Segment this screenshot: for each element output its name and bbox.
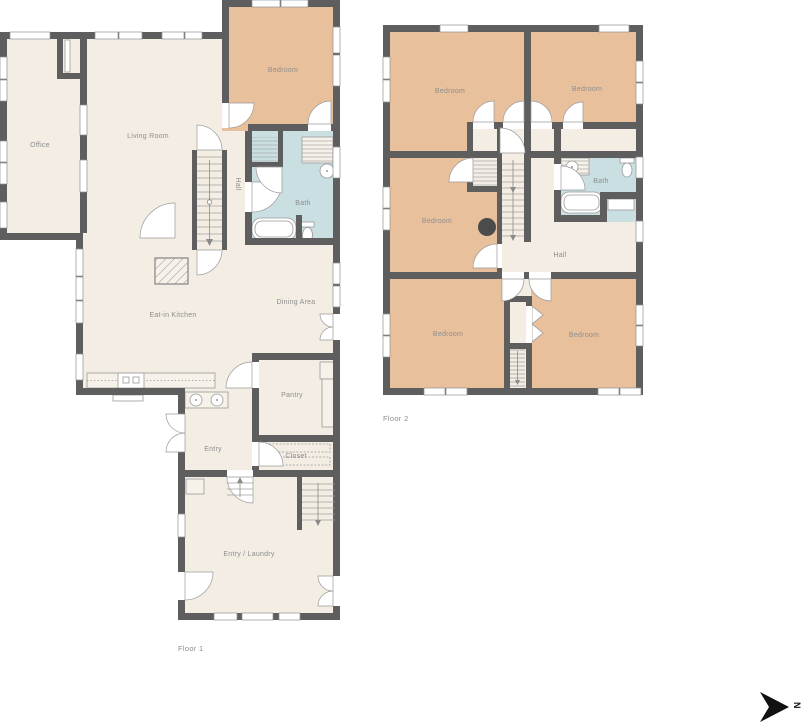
chimney [478, 218, 496, 236]
room-label-hall2: Hall [553, 252, 566, 259]
laundry-box [186, 479, 204, 494]
floor2-title: Floor 2 [383, 414, 408, 423]
room-label-pantry: Pantry [281, 392, 303, 399]
compass: N [760, 692, 802, 722]
room-label-kitchen: Eat-in Kitchen [149, 312, 196, 319]
room-label-bedroom-mid-left: Bedroom [422, 218, 452, 225]
door-arc [166, 414, 185, 433]
door-arc [166, 433, 185, 452]
toilet-bowl [622, 163, 632, 177]
room-label-living-room: Living Room [127, 133, 169, 140]
room-label-bedroom-top-left: Bedroom [435, 88, 465, 95]
north-label: N [792, 702, 802, 709]
room-label-bath: Bath [295, 200, 310, 207]
floorplan-canvas: Office Living Room Bedroom Hall Bath Eat… [0, 0, 811, 726]
linen-shelf [608, 199, 634, 210]
room-label-entry: Entry [204, 446, 222, 453]
room-label-bedroom-bottom-right: Bedroom [569, 332, 599, 339]
room-label-closet: Closet [285, 453, 306, 460]
north-arrow-icon [760, 692, 789, 722]
garden-window [113, 395, 143, 401]
bath-closet-shelves [251, 137, 278, 162]
floor1-title: Floor 1 [178, 644, 203, 653]
toilet-tank [620, 158, 634, 163]
room-label-hall: Hall [234, 177, 241, 190]
burner [123, 377, 129, 383]
room-label-office: Office [30, 142, 50, 149]
office-closet-door-leaf [65, 40, 70, 72]
toilet-tank [301, 222, 314, 227]
burner [133, 377, 139, 383]
room-label-entry-laundry: Entry / Laundry [223, 551, 274, 558]
room-label-bedroom-top-right: Bedroom [572, 86, 602, 93]
room-label-bath2: Bath [593, 178, 608, 185]
floor2-plan: Bedroom Bedroom Bedroom Bath Hall Bedroo… [383, 25, 643, 423]
room-label-dining: Dining Area [277, 299, 316, 306]
room-label-bedroom: Bedroom [268, 67, 298, 74]
floor1-plan: Office Living Room Bedroom Hall Bath Eat… [0, 0, 340, 653]
floorplan-svg: Office Living Room Bedroom Hall Bath Eat… [0, 0, 811, 726]
room-label-bedroom-bottom-left: Bedroom [433, 331, 463, 338]
stove [118, 373, 144, 388]
